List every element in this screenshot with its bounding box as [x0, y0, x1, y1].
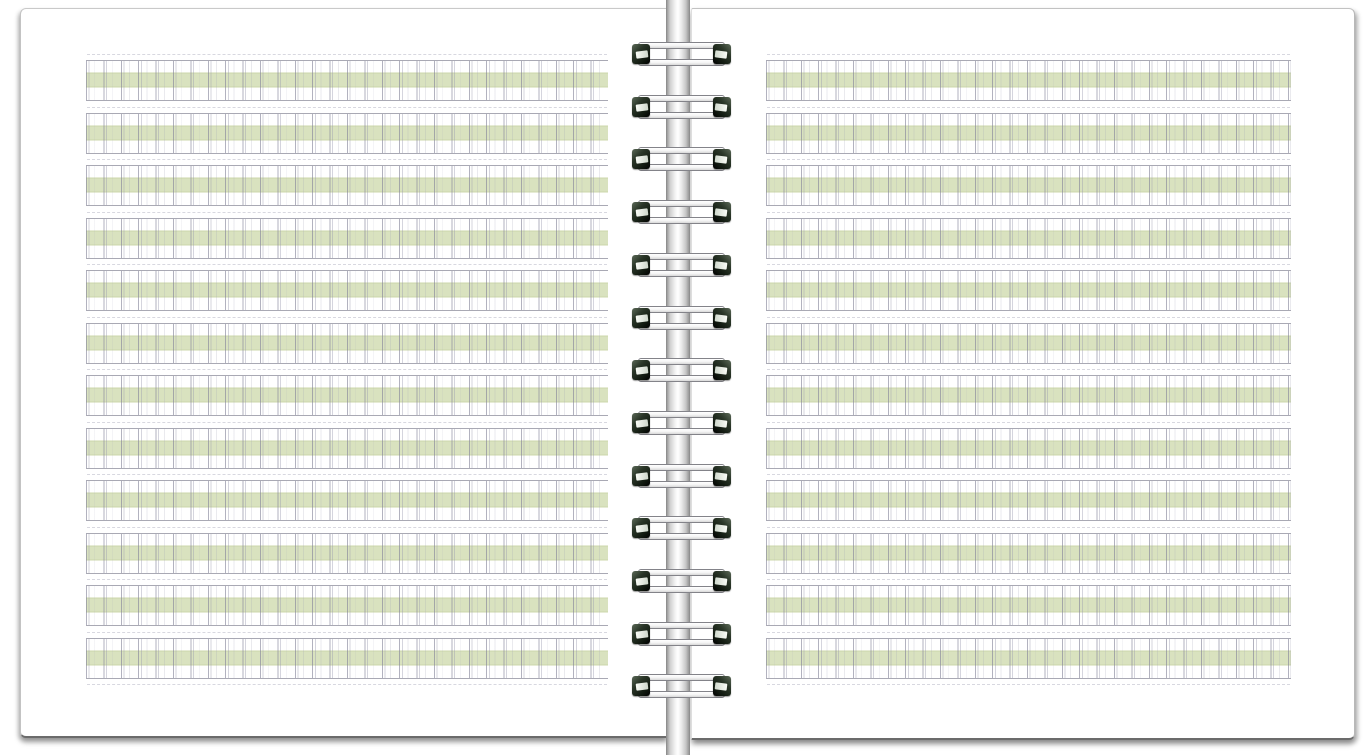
- wire-end-left: [632, 44, 650, 64]
- wire-end-left: [632, 676, 650, 696]
- wire-top: [638, 200, 725, 207]
- wire-end-right: [713, 571, 731, 591]
- wire-end-right: [713, 149, 731, 169]
- practice-row: [86, 113, 608, 154]
- practice-row: [86, 165, 608, 206]
- wire-end-right: [713, 624, 731, 644]
- wire-top: [638, 306, 725, 313]
- practice-row: [766, 585, 1291, 626]
- wire-end-left: [632, 360, 650, 380]
- wire-end-right: [713, 466, 731, 486]
- wire-end-right: [713, 413, 731, 433]
- wire-bottom: [638, 112, 725, 119]
- wire-end-left: [632, 571, 650, 591]
- wire-bottom: [638, 533, 725, 540]
- wire-loop: [633, 622, 730, 646]
- wire-loop: [633, 95, 730, 119]
- wire-end-right: [713, 308, 731, 328]
- wire-end-left: [632, 624, 650, 644]
- wire-top: [638, 411, 725, 418]
- wire-top: [638, 147, 725, 154]
- wire-top: [638, 569, 725, 576]
- wire-top: [638, 464, 725, 471]
- wire-end-left: [632, 97, 650, 117]
- practice-row: [86, 218, 608, 259]
- wire-loop: [633, 674, 730, 698]
- wire-end-right: [713, 97, 731, 117]
- wire-end-right: [713, 44, 731, 64]
- wire-bottom: [638, 270, 725, 277]
- notebook-photo: [0, 0, 1363, 755]
- wire-loop: [633, 411, 730, 435]
- practice-row: [86, 480, 608, 521]
- wire-loop: [633, 358, 730, 382]
- wire-end-left: [632, 202, 650, 222]
- right-page-rows: [766, 60, 1291, 690]
- wire-top: [638, 516, 725, 523]
- practice-row: [86, 375, 608, 416]
- wire-bottom: [638, 586, 725, 593]
- wire-top: [638, 674, 725, 681]
- practice-row: [766, 270, 1291, 311]
- wire-bottom: [638, 375, 725, 382]
- wire-loop: [633, 516, 730, 540]
- practice-row: [86, 323, 608, 364]
- practice-row: [86, 585, 608, 626]
- wire-end-left: [632, 466, 650, 486]
- wire-loop: [633, 42, 730, 66]
- wire-loop: [633, 200, 730, 224]
- wire-end-right: [713, 202, 731, 222]
- left-page-rows: [86, 60, 608, 690]
- practice-row: [766, 323, 1291, 364]
- practice-row: [86, 60, 608, 101]
- practice-row: [766, 113, 1291, 154]
- wire-end-left: [632, 255, 650, 275]
- practice-row: [766, 60, 1291, 101]
- wire-end-right: [713, 518, 731, 538]
- wire-top: [638, 95, 725, 102]
- wire-loop: [633, 306, 730, 330]
- wire-top: [638, 42, 725, 49]
- practice-row: [766, 533, 1291, 574]
- right-page: [691, 8, 1355, 740]
- practice-row: [766, 428, 1291, 469]
- wire-bottom: [638, 639, 725, 646]
- wire-top: [638, 622, 725, 629]
- wire-end-right: [713, 255, 731, 275]
- left-page: [20, 8, 668, 738]
- wire-bottom: [638, 691, 725, 698]
- practice-row: [86, 638, 608, 679]
- wire-loop: [633, 253, 730, 277]
- wire-bottom: [638, 428, 725, 435]
- practice-row: [86, 428, 608, 469]
- wire-end-left: [632, 518, 650, 538]
- practice-row: [766, 638, 1291, 679]
- wire-end-left: [632, 149, 650, 169]
- practice-row: [86, 533, 608, 574]
- wire-end-left: [632, 413, 650, 433]
- wire-loop: [633, 569, 730, 593]
- wire-bottom: [638, 481, 725, 488]
- wire-top: [638, 358, 725, 365]
- wire-bottom: [638, 59, 725, 66]
- wire-loop: [633, 147, 730, 171]
- practice-row: [766, 165, 1291, 206]
- wire-end-right: [713, 360, 731, 380]
- wire-loop: [633, 464, 730, 488]
- practice-row: [86, 270, 608, 311]
- practice-row: [766, 375, 1291, 416]
- wire-end-right: [713, 676, 731, 696]
- wire-bottom: [638, 164, 725, 171]
- wire-bottom: [638, 323, 725, 330]
- practice-row: [766, 480, 1291, 521]
- wire-top: [638, 253, 725, 260]
- practice-row: [766, 218, 1291, 259]
- wire-end-left: [632, 308, 650, 328]
- wire-bottom: [638, 217, 725, 224]
